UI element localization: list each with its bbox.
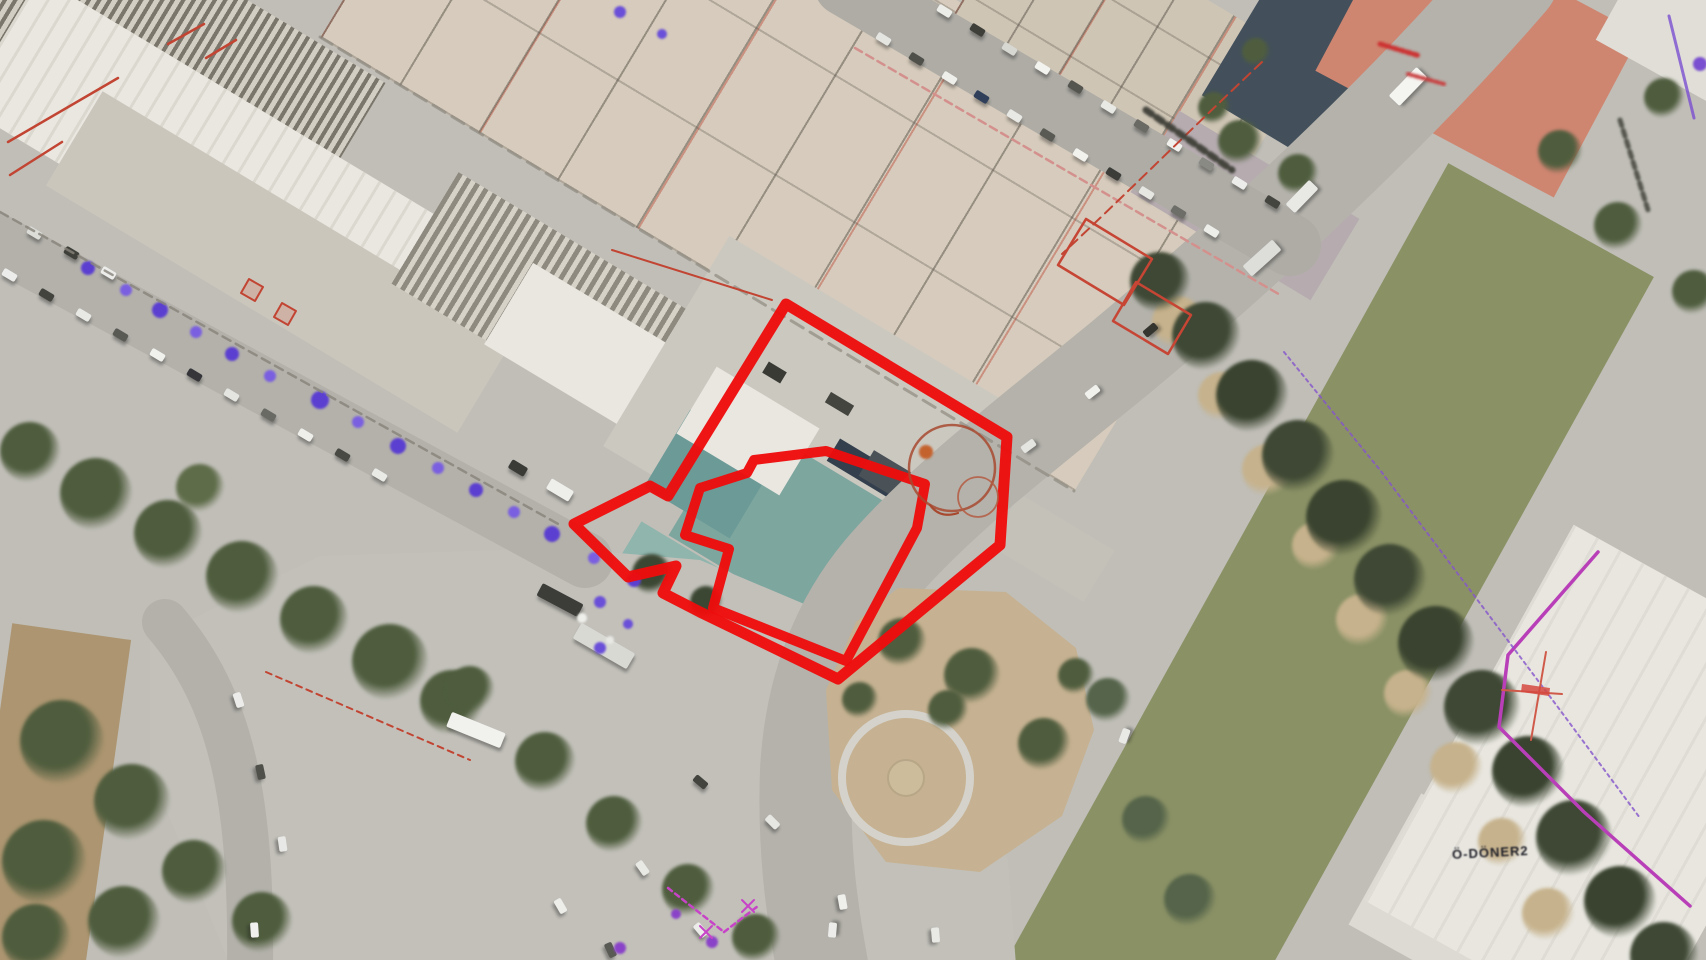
road-label-smudge [1146,110,1232,170]
satellite-map-view[interactable]: Ö-DÖNER2 [0,0,1706,960]
cadastral-overlay-layer [0,0,1706,960]
red-parcel-rect [1113,282,1191,354]
survey-circle [909,425,995,511]
purple-ne-line [1669,16,1694,118]
beige-seam [320,37,1074,491]
purple-band-line [1284,352,1640,818]
parcel-outline-inner [685,451,925,661]
red-number-smudge [1380,44,1420,56]
road-label-smudge [1620,120,1648,210]
red-number-smudge [1408,74,1444,84]
pink-road-edge [855,48,1282,296]
red-line-roof [612,250,772,300]
red-dashed-lot [266,672,470,760]
warehouse-front-edge [0,212,560,525]
parcel-outline-outer [574,304,1007,679]
red-roof-blob [1521,684,1550,696]
red-square [241,279,263,301]
red-marks-nw [8,24,236,175]
red-square [274,303,296,325]
red-parcel-rect [1058,219,1152,305]
survey-circle-inner [958,477,998,517]
red-roof-line [1502,652,1562,740]
